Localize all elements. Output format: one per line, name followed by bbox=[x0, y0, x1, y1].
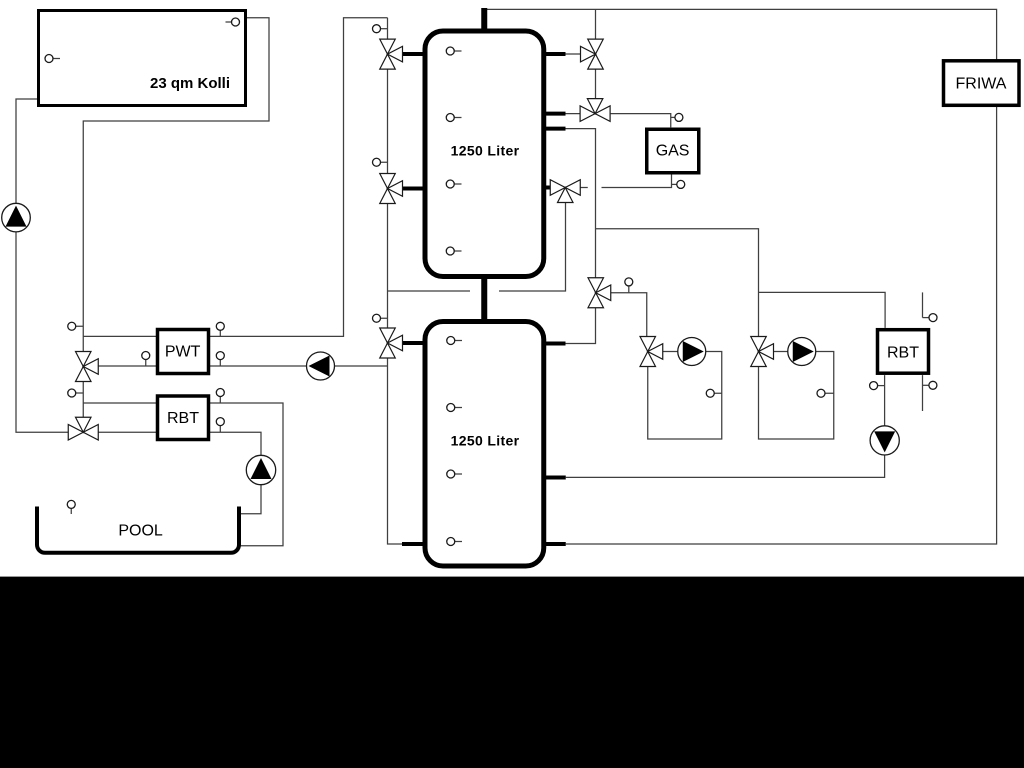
svg-text:POOL: POOL bbox=[118, 523, 163, 540]
svg-text:23 qm Kolli: 23 qm Kolli bbox=[150, 75, 230, 92]
svg-text:1250 Liter: 1250 Liter bbox=[451, 433, 520, 449]
svg-text:1250 Liter: 1250 Liter bbox=[451, 143, 520, 159]
svg-text:GAS: GAS bbox=[656, 143, 690, 160]
svg-text:RBT: RBT bbox=[887, 345, 919, 362]
svg-text:PWT: PWT bbox=[165, 344, 201, 361]
svg-text:RBT: RBT bbox=[167, 410, 199, 427]
svg-text:FRIWA: FRIWA bbox=[956, 76, 1007, 93]
